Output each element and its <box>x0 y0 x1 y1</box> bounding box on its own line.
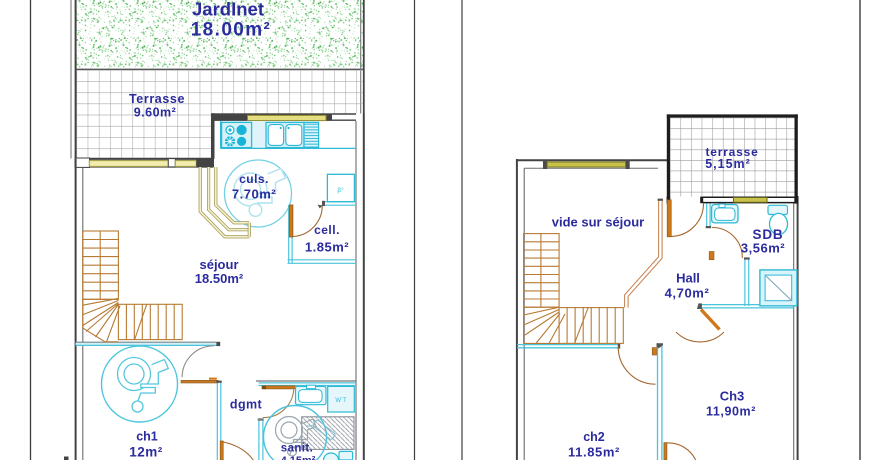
svg-text:4.15m²: 4.15m² <box>281 455 316 460</box>
svg-text:W´T: W´T <box>335 398 347 404</box>
svg-text:1.85m²: 1.85m² <box>305 240 349 255</box>
svg-text:11,90m²: 11,90m² <box>706 405 756 419</box>
svg-text:18.50m²: 18.50m² <box>195 271 244 286</box>
svg-text:Terrasse: Terrasse <box>129 92 185 106</box>
svg-text:9.60m²: 9.60m² <box>134 106 177 120</box>
svg-text:ch1: ch1 <box>136 430 158 444</box>
svg-text:Hall: Hall <box>676 271 700 286</box>
svg-text:vide sur séjour: vide sur séjour <box>552 215 644 230</box>
svg-text:12m²: 12m² <box>129 445 163 460</box>
svg-text:cell.: cell. <box>314 223 340 237</box>
svg-text:Ch3: Ch3 <box>720 389 745 404</box>
svg-text:culs.: culs. <box>239 172 269 186</box>
svg-text:ch2: ch2 <box>583 430 605 444</box>
svg-text:séjour: séjour <box>199 257 238 272</box>
svg-text:β°: β° <box>337 186 344 194</box>
svg-text:3,56m²: 3,56m² <box>741 241 785 256</box>
svg-text:JardInet: JardInet <box>192 0 264 20</box>
svg-text:11.85m²: 11.85m² <box>568 445 620 460</box>
svg-text:4,70m²: 4,70m² <box>665 286 710 301</box>
svg-text:5,15m²: 5,15m² <box>705 157 751 171</box>
svg-text:dgmt: dgmt <box>230 398 263 412</box>
svg-text:7.70m²: 7.70m² <box>232 186 276 201</box>
svg-text:sanit.: sanit. <box>281 443 313 455</box>
svg-text:18.00m²: 18.00m² <box>191 20 272 41</box>
